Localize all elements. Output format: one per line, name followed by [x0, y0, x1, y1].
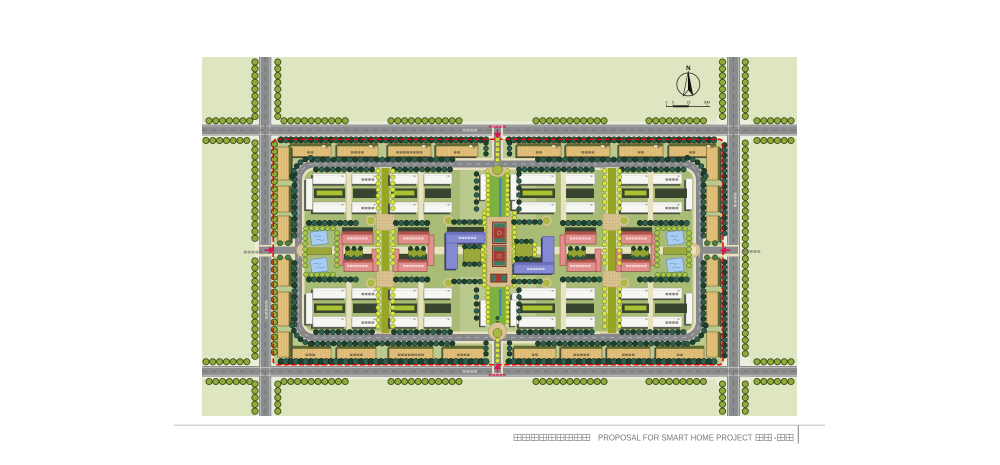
- svg-text:15: 15: [687, 100, 691, 104]
- svg-text:30M: 30M: [704, 100, 711, 104]
- svg-text:0: 0: [666, 100, 668, 104]
- svg-text:5: 5: [672, 100, 674, 104]
- svg-text:PROPOSAL FOR SMART HOME PROJEC: PROPOSAL FOR SMART HOME PROJECT: [598, 434, 753, 443]
- svg-text:N: N: [686, 65, 691, 72]
